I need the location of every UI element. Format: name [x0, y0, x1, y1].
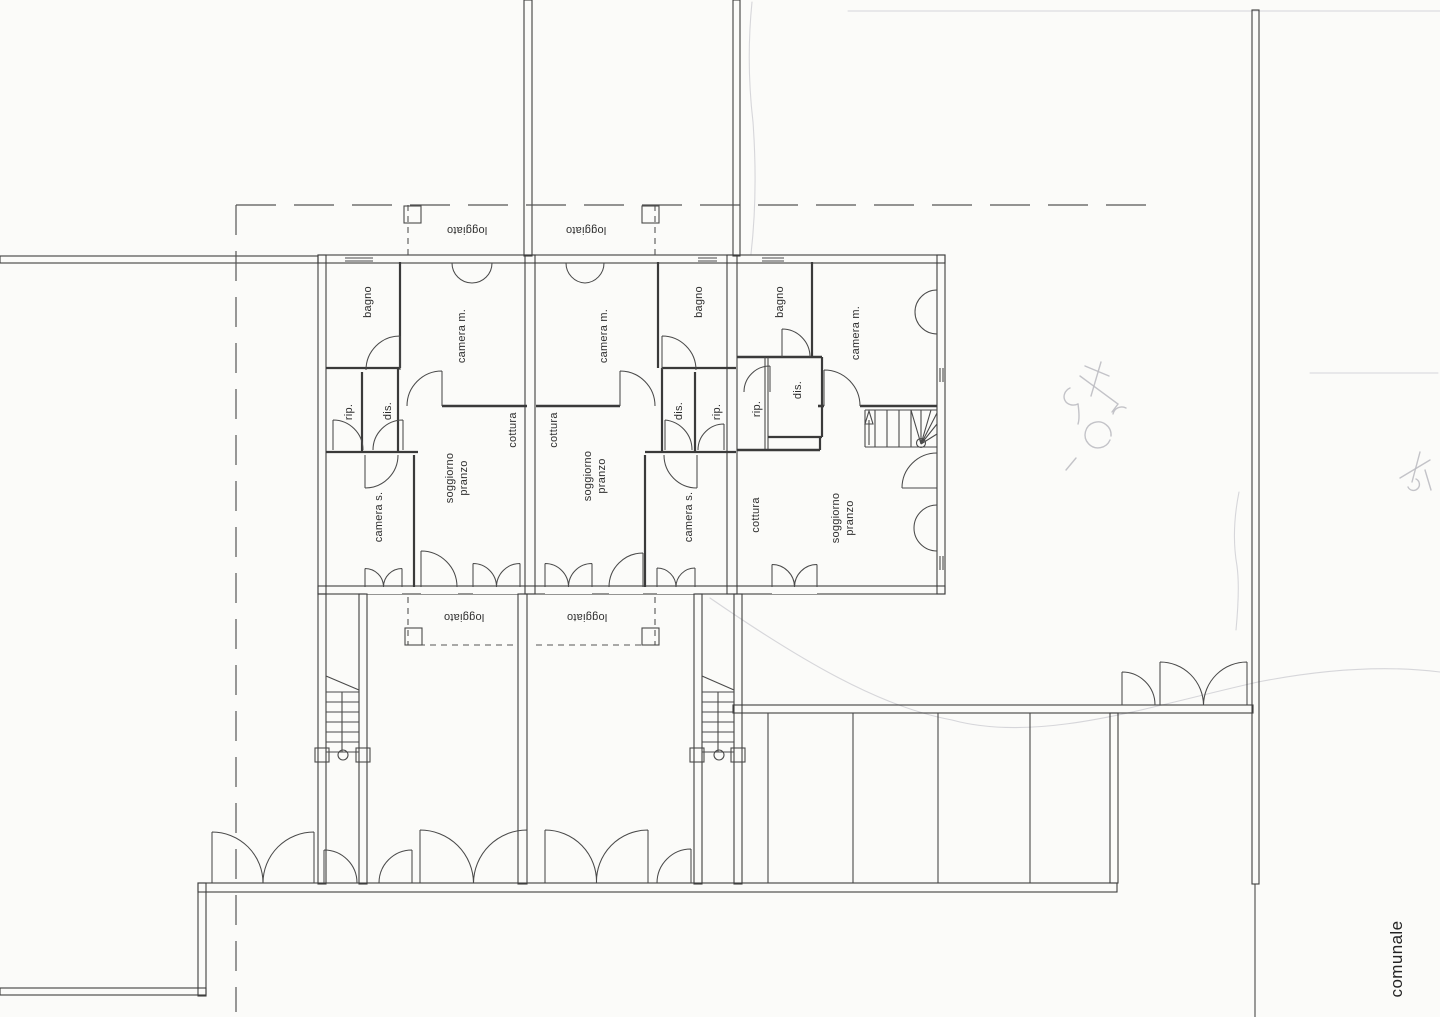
room-label-dis: dis. [382, 402, 394, 420]
loggias [404, 205, 659, 645]
room-label-bagno: bagno [693, 286, 705, 318]
site-boundaries [0, 0, 1259, 1017]
courtyard-walls [0, 883, 1117, 996]
garage-block [733, 662, 1253, 883]
party-wall-2 [727, 255, 737, 594]
building-wall-west [318, 255, 326, 594]
stair-post [731, 748, 745, 762]
room-label-soggiorno: soggiorno [444, 453, 456, 504]
loggia-post [642, 628, 659, 645]
room-label-soggiorno: soggiorno [830, 493, 842, 544]
room-label-bagno: bagno [362, 286, 374, 318]
room-label-camera-m: camera m. [850, 306, 862, 360]
room-label-pranzo: pranzo [844, 500, 856, 535]
party-wall-1 [525, 255, 535, 594]
boundary-wall-west [0, 256, 318, 263]
building-walls [318, 255, 945, 594]
handwritten-pencil-marks [1064, 362, 1126, 470]
room-label-camera-s: camera s. [373, 492, 385, 543]
room-label-camera-m: camera m. [598, 309, 610, 363]
room-label-soggiorno: soggiorno [582, 451, 594, 502]
floor-plan-scan: loggiato loggiato loggiato loggiato bagn… [0, 0, 1440, 1017]
courtyard-gates [212, 830, 691, 883]
building-wall-north [318, 255, 945, 263]
room-label-loggiato: loggiato [567, 611, 608, 623]
room-label-rip: rip. [343, 404, 355, 420]
room-label-cottura: cottura [548, 412, 560, 448]
stair-post [356, 748, 370, 762]
room-label-pranzo: pranzo [596, 458, 608, 493]
handwritten-pencil-marks-right [1400, 452, 1431, 490]
stair-post [315, 748, 329, 762]
room-label-rip: rip. [711, 404, 723, 420]
external-stairs-right [690, 594, 745, 884]
room-label-camera-s: camera s. [683, 492, 695, 543]
room-label-loggiato: loggiato [566, 224, 607, 236]
internal-staircase [865, 410, 937, 448]
loggia-post [404, 206, 421, 223]
room-label-bagno: bagno [774, 286, 786, 318]
room-label-camera-m: camera m. [456, 309, 468, 363]
garden-divider-wall [518, 594, 527, 884]
external-stairs-left [315, 594, 370, 884]
site-label-comunale: comunale [1387, 921, 1406, 998]
room-label-loggiato: loggiato [447, 224, 488, 236]
door-swings [333, 263, 937, 587]
pencil-marks [710, 2, 1440, 728]
room-label-loggiato: loggiato [444, 611, 485, 623]
room-label-pranzo: pranzo [458, 460, 470, 495]
room-labels: loggiato loggiato loggiato loggiato bagn… [343, 224, 1406, 997]
boundary-wall-north-2 [733, 0, 740, 256]
boundary-wall-north-1 [524, 0, 532, 256]
room-label-dis: dis. [673, 402, 685, 420]
room-label-cottura: cottura [507, 412, 519, 448]
room-label-dis: dis. [792, 381, 804, 399]
loggia-post [642, 206, 659, 223]
room-label-cottura: cottura [750, 497, 762, 533]
boundary-wall-east [1252, 10, 1259, 884]
floor-plan-page: loggiato loggiato loggiato loggiato bagn… [0, 0, 1440, 1017]
interior-walls [326, 262, 937, 587]
room-label-rip: rip. [751, 401, 763, 417]
